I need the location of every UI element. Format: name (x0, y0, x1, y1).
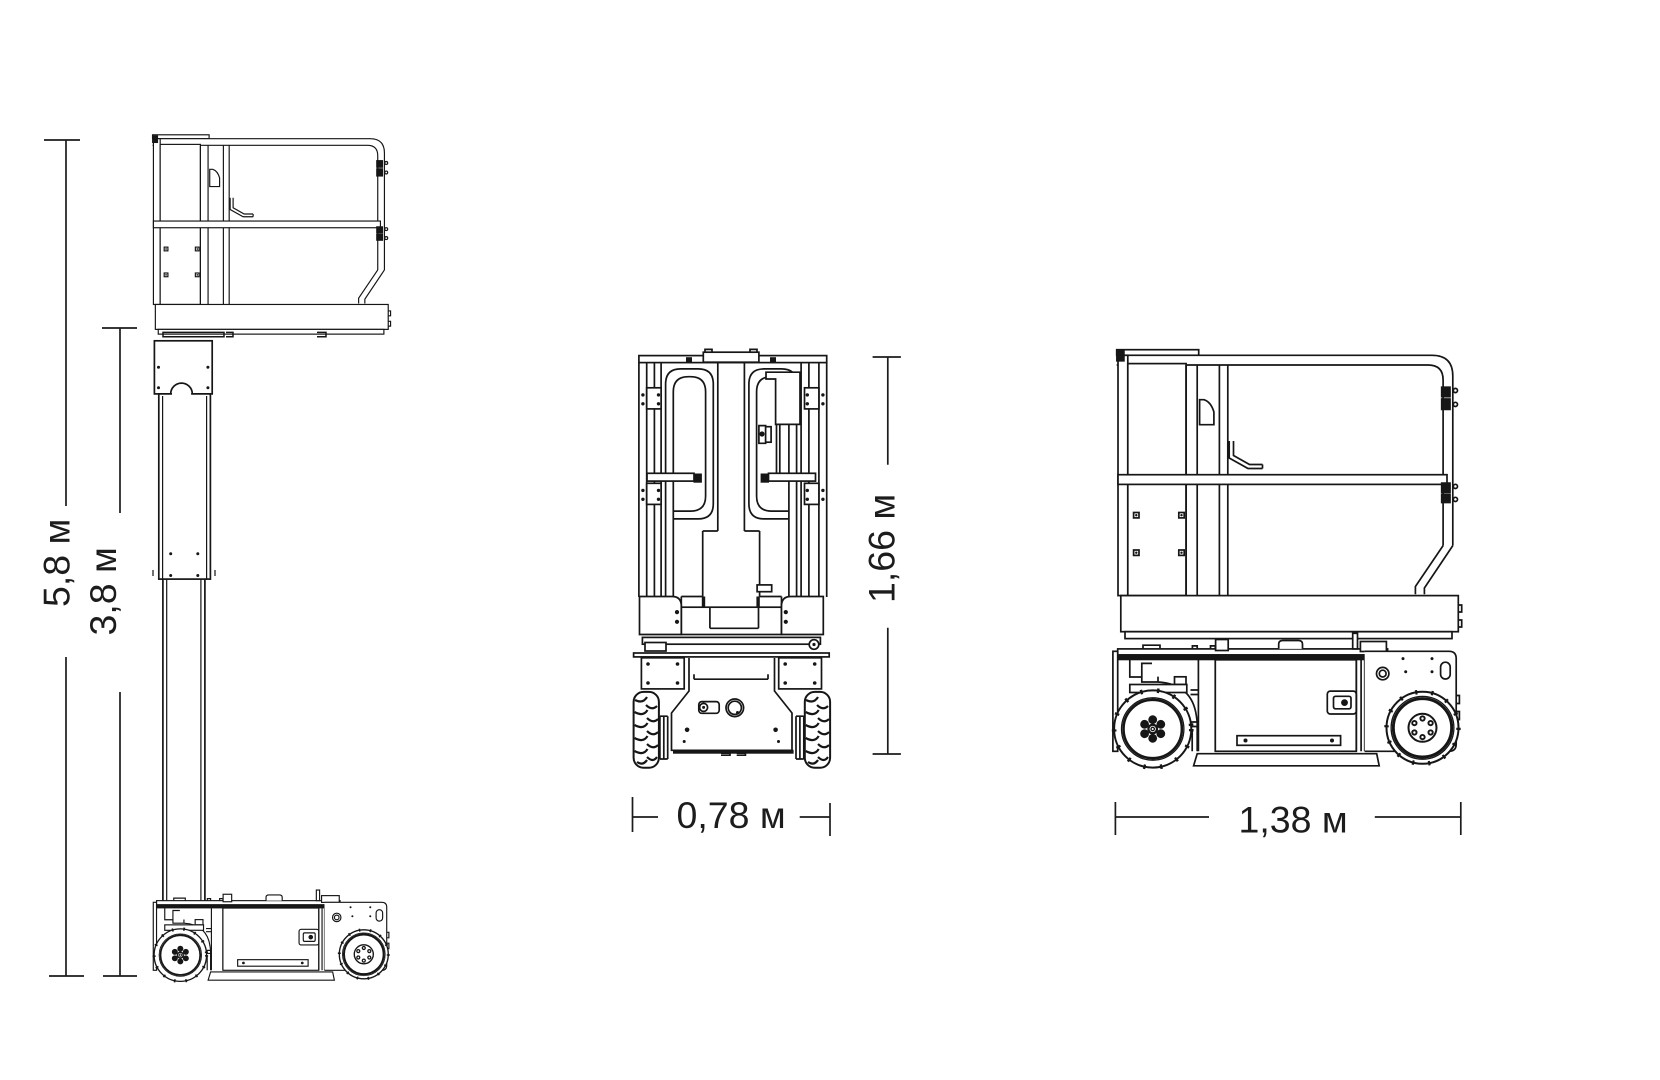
svg-text:5,8 м: 5,8 м (36, 519, 78, 607)
svg-text:3,8 м: 3,8 м (82, 547, 124, 635)
svg-text:1,38 м: 1,38 м (1239, 799, 1348, 841)
svg-text:0,78 м: 0,78 м (677, 794, 786, 836)
svg-text:1,66 м: 1,66 м (861, 494, 903, 603)
